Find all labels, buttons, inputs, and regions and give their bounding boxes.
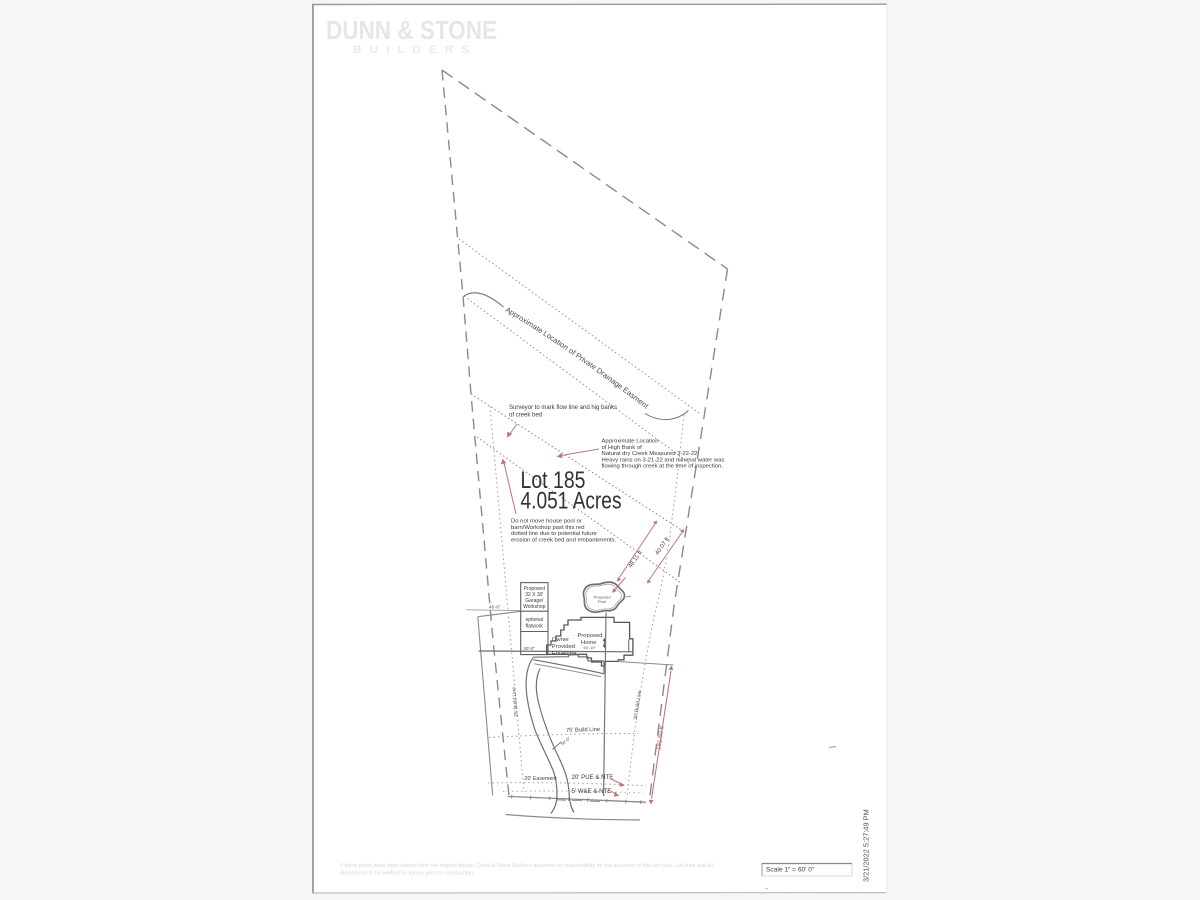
svg-text:Workshop: Workshop — [523, 604, 546, 610]
svg-text:of High Bank of: of High Bank of — [602, 445, 643, 451]
svg-text:of creek bed: of creek bed — [509, 413, 542, 419]
svg-text:Do not move house pool or: Do not move house pool or — [511, 519, 582, 525]
svg-text:Approximate Location: Approximate Location — [602, 439, 659, 445]
svg-text:Proposed: Proposed — [578, 633, 603, 639]
svg-text:75' Build Line: 75' Build Line — [566, 727, 600, 734]
svg-text:20' Easement: 20' Easement — [525, 776, 558, 782]
svg-text:Provided: Provided — [552, 644, 575, 650]
svg-text:optional: optional — [526, 617, 544, 623]
svg-text:dotted line due to potential f: dotted line due to potential future — [511, 531, 598, 537]
svg-text:3/21/2022 5:27:49 PM: 3/21/2022 5:27:49 PM — [862, 809, 871, 882]
svg-text:BUILDERS: BUILDERS — [353, 44, 477, 56]
svg-text:DUNN & STONE: DUNN & STONE — [326, 15, 497, 45]
svg-text:flowing through creek at the t: flowing through creek at the time of ins… — [602, 464, 724, 470]
svg-text:Pool: Pool — [598, 599, 606, 604]
svg-text:If these plans have been alter: If these plans have been altered from th… — [340, 863, 713, 869]
svg-text:Scale 1" = 60' 0": Scale 1" = 60' 0" — [766, 867, 815, 874]
svg-text:dimensions to be verified by s: dimensions to be verified by survey prio… — [340, 871, 475, 877]
svg-text:Heavy rains on 3-21-22 and min: Heavy rains on 3-21-22 and minimal water… — [602, 457, 725, 463]
svg-text:60'-10": 60'-10" — [584, 645, 597, 650]
svg-text:Natural dry Creek Measured 3-: Natural dry Creek Measured 3-22-22 — [602, 451, 698, 457]
svg-text:Owner: Owner — [552, 637, 569, 643]
svg-text:46'-6": 46'-6" — [489, 605, 501, 610]
svg-text:Surveyor to mark flow line and: Surveyor to mark flow line and hig banks — [509, 405, 617, 411]
svg-text:barn/Workshop past this red: barn/Workshop past this red — [511, 525, 585, 531]
svg-text:erosion of creek bed and emban: erosion of creek bed and embankments. — [511, 537, 616, 543]
svg-text:20' PUE & NTE: 20' PUE & NTE — [572, 774, 614, 781]
svg-text:5' W&E & NTE: 5' W&E & NTE — [572, 788, 612, 795]
svg-text:40'-0": 40'-0" — [524, 646, 536, 651]
svg-text:4.051 Acres: 4.051 Acres — [521, 488, 622, 515]
svg-text:flatwork: flatwork — [526, 624, 544, 630]
